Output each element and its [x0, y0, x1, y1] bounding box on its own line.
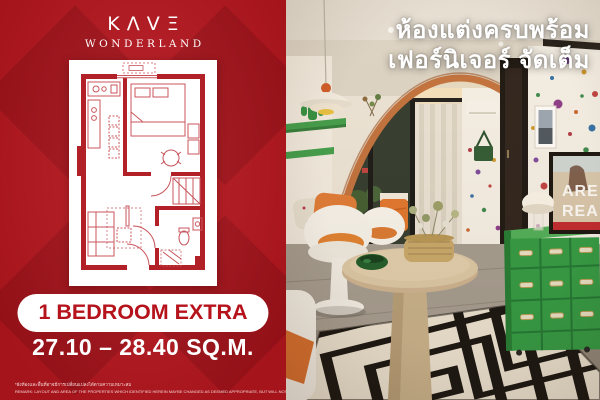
- glass-bowl: [356, 254, 388, 270]
- bedroom-door: [500, 58, 528, 258]
- area-range-label: 27.10 – 28.40 SQ.M.: [0, 334, 286, 361]
- floorplan-svg: [69, 60, 217, 286]
- disclaimer-thai: *ผังห้องและพื้นที่อาจมีการเปลี่ยนแปลงได้…: [15, 381, 277, 388]
- tv-text-line1: ARE Y: [562, 183, 600, 200]
- brand-block: KΛVΞ WONDERLAND: [0, 13, 286, 50]
- headline-line-2: เฟอร์นิเจอร์ จัดเต็ม: [388, 46, 590, 76]
- brand-wordmark: WONDERLAND: [0, 38, 286, 50]
- ad-banner: KΛVΞ WONDERLAND: [0, 0, 600, 400]
- unit-type-label: 1 BEDROOM EXTRA: [38, 300, 247, 324]
- tv: ARE Y REA: [549, 152, 600, 234]
- ac-unit: [466, 101, 499, 116]
- disclaimer-block: *ผังห้องและพื้นที่อาจมีการเปลี่ยนแปลงได้…: [15, 381, 277, 395]
- left-red-panel: KΛVΞ WONDERLAND: [0, 0, 286, 400]
- tv-text-line2: REA: [562, 203, 599, 220]
- brand-logo: KΛVΞ: [0, 13, 286, 35]
- headline-line-1: ห้องแต่งครบพร้อม: [388, 16, 590, 46]
- interior-photo-panel: ARE Y REA: [286, 0, 600, 400]
- wicker-basket: [404, 234, 454, 262]
- picture-frame: [535, 106, 556, 148]
- unit-type-pill: 1 BEDROOM EXTRA: [17, 294, 268, 332]
- green-sideboard: [504, 221, 600, 356]
- disclaimer-english: REMARK: LAYOUT AND AREA OF THE PROPERTIE…: [15, 389, 277, 395]
- floorplan-card: [69, 60, 217, 286]
- headline: ห้องแต่งครบพร้อม เฟอร์นิเจอร์ จัดเต็ม: [388, 16, 590, 76]
- foreground-chair: [286, 290, 316, 400]
